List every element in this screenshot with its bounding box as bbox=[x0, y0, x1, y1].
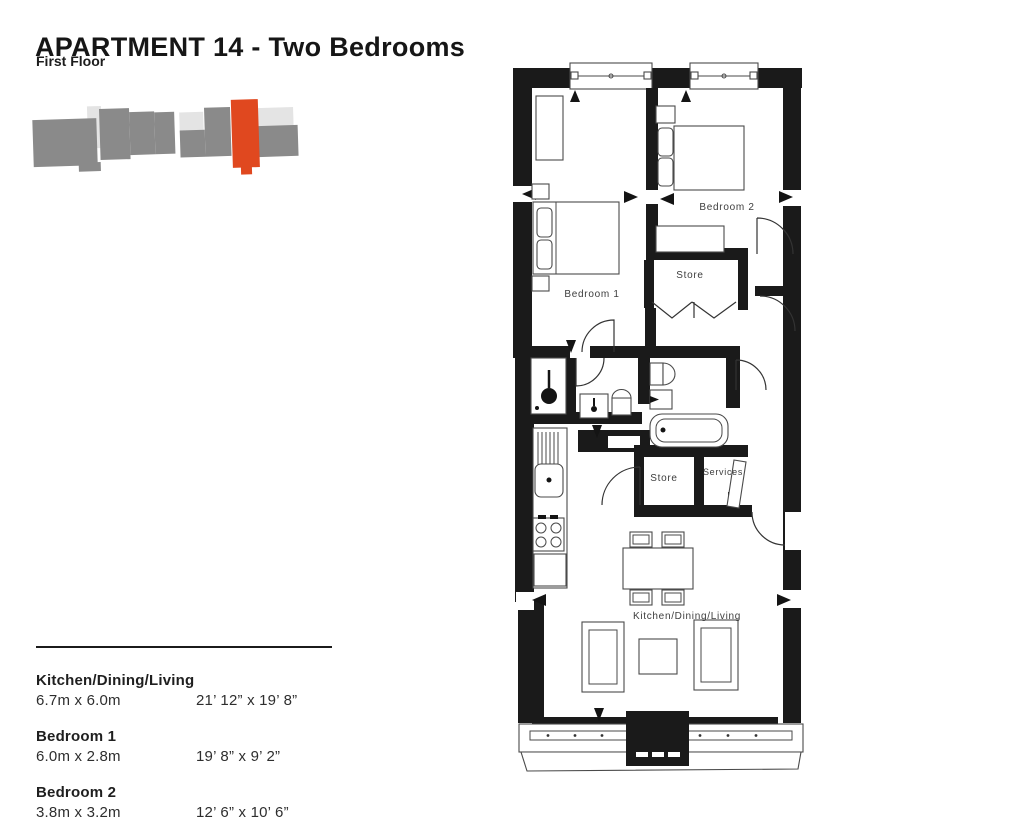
room-label-bedroom2: Bedroom 2 bbox=[699, 202, 754, 213]
floor-plan: Bedroom 1 Bedroom 2 Store Store Services… bbox=[513, 63, 803, 771]
key-block bbox=[129, 111, 155, 155]
door-arc bbox=[576, 358, 604, 386]
room-label-kitchen-dining-living: Kitchen/Dining/Living bbox=[633, 611, 741, 622]
hob-icon bbox=[533, 515, 564, 551]
door-arc bbox=[736, 360, 766, 390]
room-label-store-upper: Store bbox=[676, 270, 703, 281]
room-label-services: Services bbox=[703, 467, 743, 477]
dimension-row: Kitchen/Dining/Living 6.7m x 6.0m 21’ 12… bbox=[36, 672, 334, 709]
bedside-table-icon bbox=[656, 106, 675, 123]
dimension-imperial: 21’ 12” x 19’ 8” bbox=[196, 692, 297, 709]
sofa-icon bbox=[694, 620, 738, 690]
basin-icon bbox=[650, 390, 672, 409]
marker-triangle bbox=[681, 90, 691, 102]
key-block bbox=[204, 107, 232, 157]
room-label-store-lower: Store bbox=[650, 473, 677, 484]
dining-set bbox=[623, 532, 693, 605]
building-key-plan bbox=[32, 98, 299, 181]
dimension-metric: 6.7m x 6.0m bbox=[36, 692, 196, 709]
double-bed-icon bbox=[658, 126, 744, 190]
marker-triangle bbox=[570, 90, 580, 102]
key-block-light bbox=[257, 107, 294, 128]
divider-line bbox=[36, 646, 332, 648]
dimension-imperial: 19’ 8” x 9’ 2” bbox=[196, 748, 280, 765]
key-block-highlighted-unit-tab bbox=[241, 166, 252, 174]
side-window-gap bbox=[516, 592, 534, 610]
ensuite-fixtures bbox=[531, 358, 631, 418]
dimension-room-name: Bedroom 2 bbox=[36, 784, 334, 801]
key-block bbox=[79, 162, 101, 172]
marker-triangle bbox=[660, 193, 674, 205]
kitchen-unit bbox=[534, 554, 566, 586]
dimension-metric: 6.0m x 2.8m bbox=[36, 748, 196, 765]
dimension-room-name: Bedroom 1 bbox=[36, 728, 334, 745]
sofa-icon bbox=[582, 622, 624, 692]
living-room-furniture bbox=[582, 620, 738, 692]
key-block bbox=[180, 130, 206, 158]
key-block-light bbox=[179, 112, 204, 133]
window bbox=[690, 63, 758, 89]
coffee-table-icon bbox=[639, 639, 677, 674]
wc-icon bbox=[650, 363, 675, 385]
key-block bbox=[258, 125, 299, 157]
dimensions-list: Kitchen/Dining/Living 6.7m x 6.0m 21’ 12… bbox=[36, 646, 334, 840]
bedside-table-icon bbox=[532, 184, 549, 199]
marker-triangle bbox=[624, 191, 638, 203]
key-block bbox=[32, 118, 97, 167]
bathtub-icon bbox=[650, 414, 728, 447]
key-block bbox=[154, 112, 175, 155]
bedroom1-furniture bbox=[532, 96, 619, 291]
dimension-metric: 3.8m x 3.2m bbox=[36, 804, 196, 821]
dimension-row: Bedroom 2 3.8m x 3.2m 12’ 6” x 10’ 6” bbox=[36, 784, 334, 821]
dining-table-icon bbox=[623, 548, 693, 589]
sink-icon bbox=[535, 464, 563, 497]
door-arc bbox=[752, 512, 785, 545]
bathroom-fixtures bbox=[650, 363, 728, 447]
wc-icon bbox=[612, 390, 631, 416]
key-block-highlighted-unit bbox=[231, 99, 260, 168]
wardrobe-icon bbox=[536, 96, 563, 160]
window bbox=[570, 63, 652, 89]
dimension-imperial: 12’ 6” x 10’ 6” bbox=[196, 804, 289, 821]
wardrobe-icon bbox=[656, 226, 724, 252]
bedside-table-icon bbox=[532, 276, 549, 291]
bifold-door bbox=[652, 302, 736, 318]
key-block bbox=[99, 108, 131, 160]
balcony-door-block bbox=[626, 711, 689, 766]
kitchen-fixtures bbox=[533, 428, 567, 588]
dimension-room-name: Kitchen/Dining/Living bbox=[36, 672, 334, 689]
bedroom2-furniture bbox=[656, 106, 744, 252]
basin-icon bbox=[580, 394, 608, 418]
room-label-bedroom1: Bedroom 1 bbox=[564, 289, 619, 300]
door-opening bbox=[785, 512, 801, 550]
double-bed-icon bbox=[533, 202, 619, 274]
dimension-row: Bedroom 1 6.0m x 2.8m 19’ 8” x 9’ 2” bbox=[36, 728, 334, 765]
